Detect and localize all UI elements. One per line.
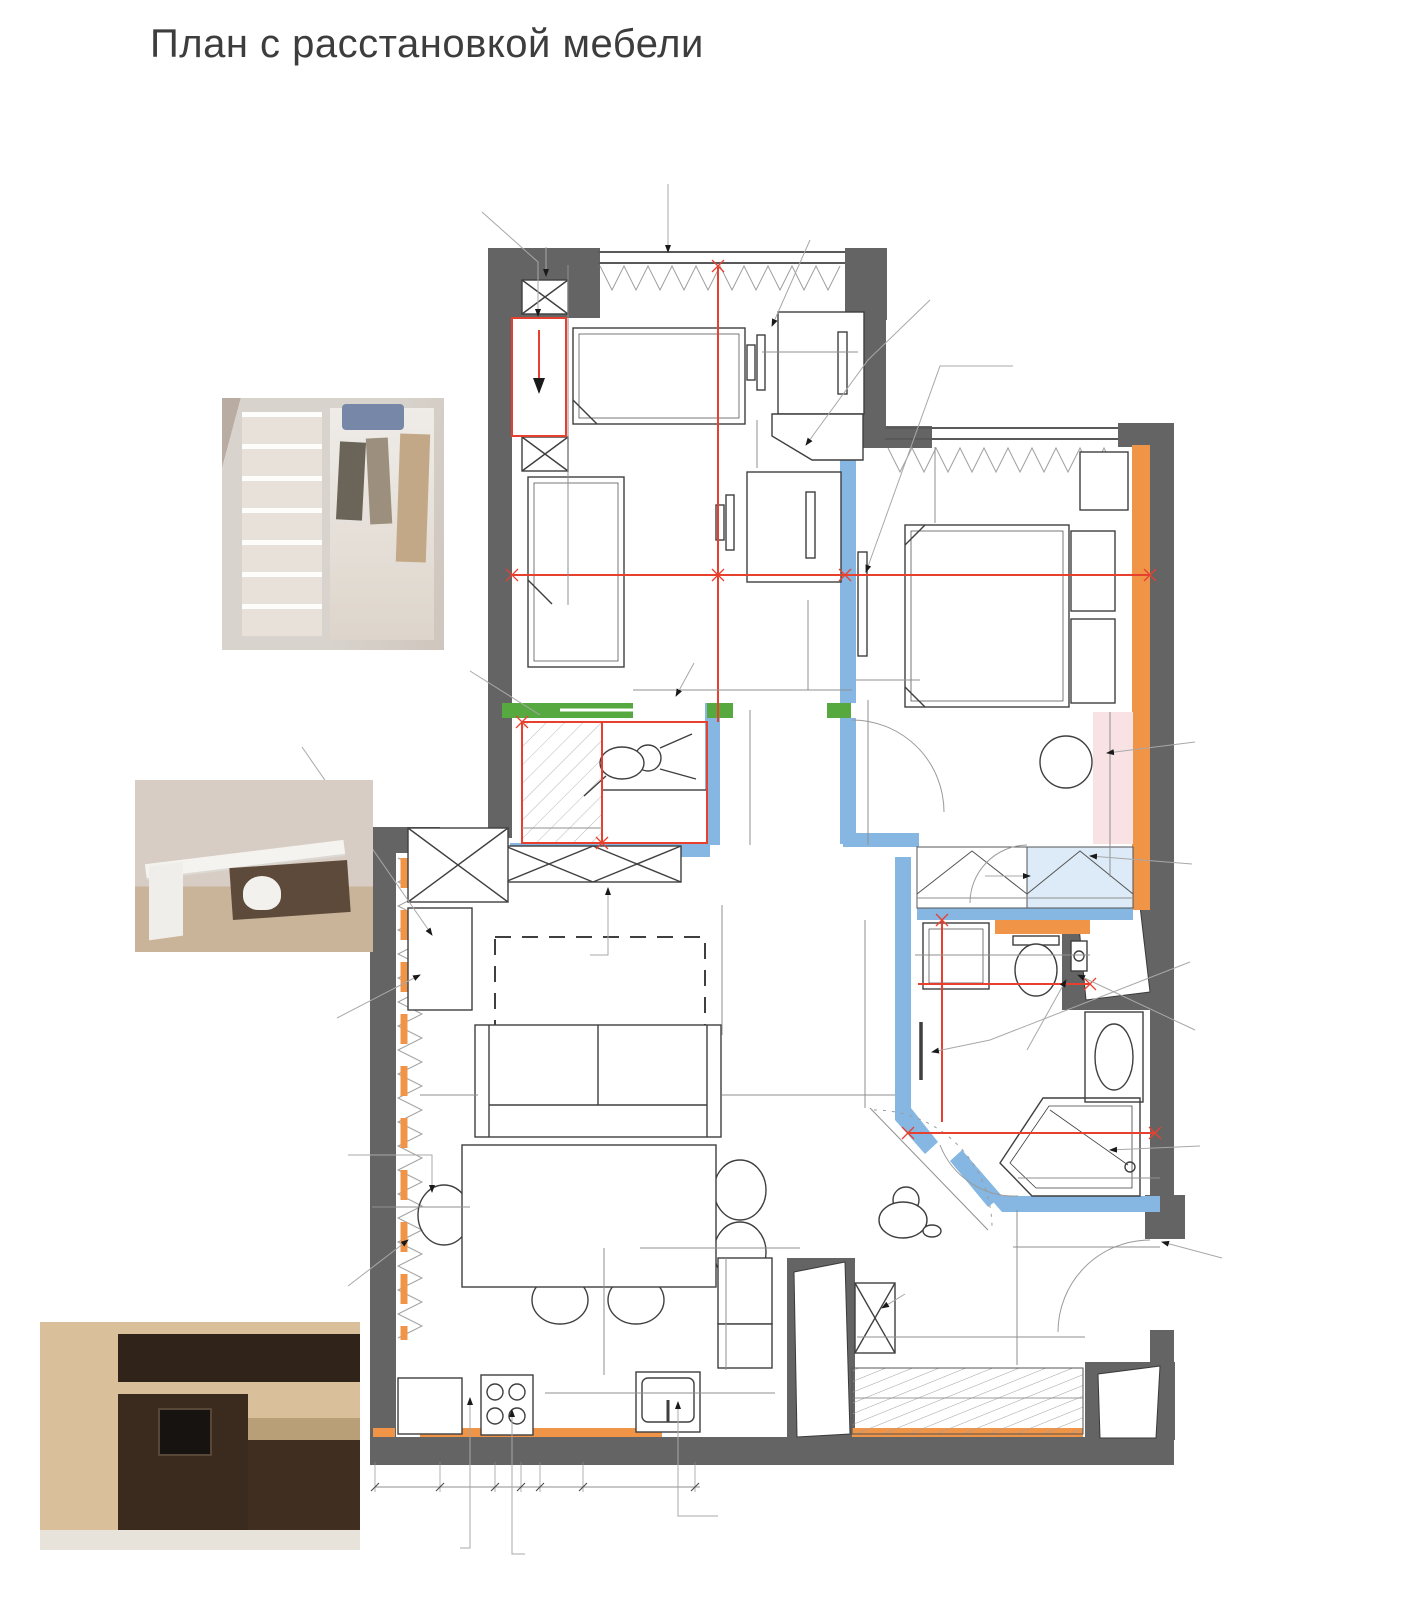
built-in-oven (158, 1408, 212, 1456)
kitchen-counter (248, 1418, 360, 1530)
entry-closet (852, 1368, 1083, 1434)
chair (243, 876, 281, 910)
clothes (336, 441, 366, 520)
floor-plan-page: План с расстановкой мебели (0, 0, 1426, 1600)
kitchen-floor (40, 1530, 360, 1550)
desk-photo (135, 780, 373, 952)
clothes (366, 437, 392, 524)
dressing-table-zone (1093, 712, 1133, 844)
hangers-zone (522, 722, 602, 843)
kitchen-upper-cabinets (118, 1334, 360, 1382)
pocket-door (502, 703, 851, 718)
suitcase (342, 404, 404, 430)
corner-wardrobe-zone (1027, 847, 1133, 908)
desk-leg (149, 862, 183, 941)
wardrobe-shelves (242, 412, 322, 636)
kitchen-photo (40, 1322, 360, 1550)
clothes (396, 434, 430, 563)
wardrobe-photo (222, 398, 444, 650)
page-title: План с расстановкой мебели (150, 22, 704, 67)
